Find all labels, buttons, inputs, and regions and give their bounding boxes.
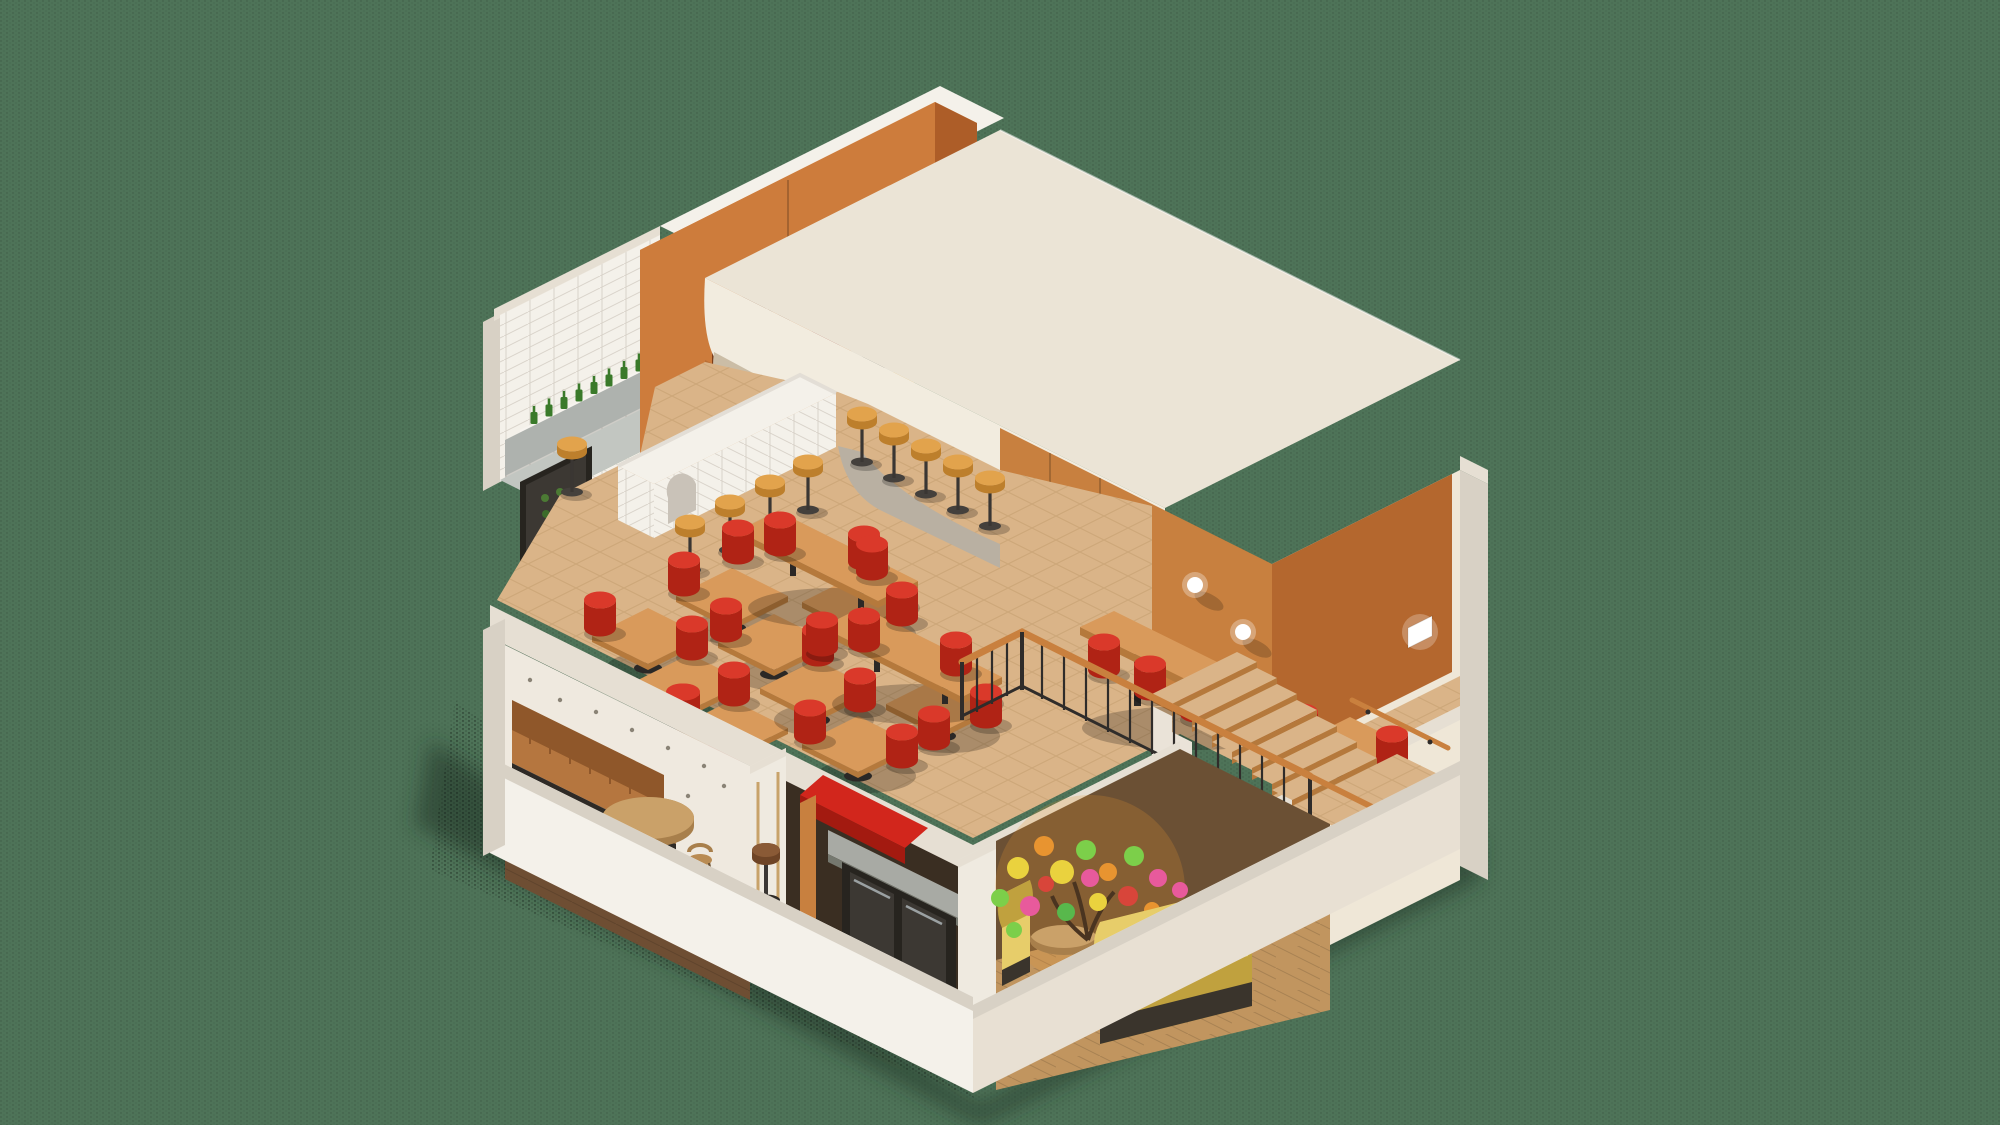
left-cut-column <box>483 619 505 856</box>
right-wall-cut-band <box>1460 470 1488 880</box>
render-stage <box>0 0 2000 1125</box>
isometric-restaurant-render <box>0 0 2000 1125</box>
wall-sconce-rect <box>1402 614 1438 650</box>
